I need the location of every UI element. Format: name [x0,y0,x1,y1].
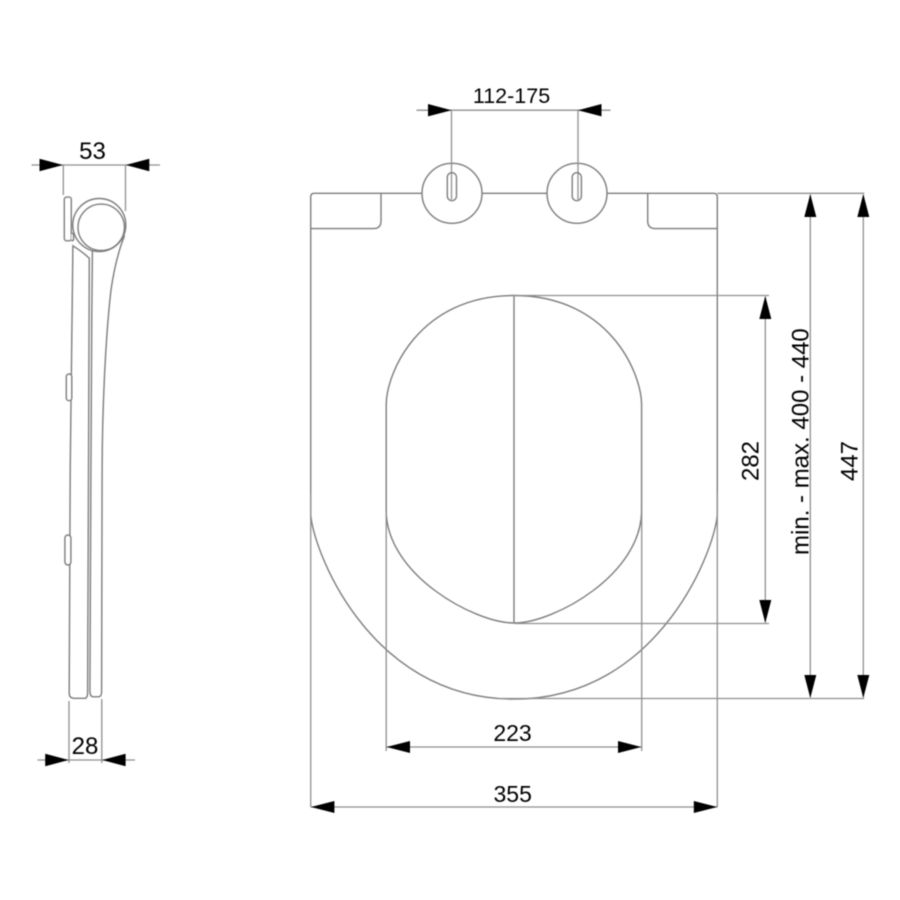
svg-text:112-175: 112-175 [473,84,550,108]
svg-text:53: 53 [79,138,106,165]
svg-text:282: 282 [738,441,765,481]
svg-text:223: 223 [493,720,531,746]
svg-text:28: 28 [72,733,99,760]
svg-text:355: 355 [494,781,532,807]
svg-text:min. - max. 400 - 440: min. - max. 400 - 440 [787,328,814,555]
svg-text:447: 447 [837,441,864,481]
